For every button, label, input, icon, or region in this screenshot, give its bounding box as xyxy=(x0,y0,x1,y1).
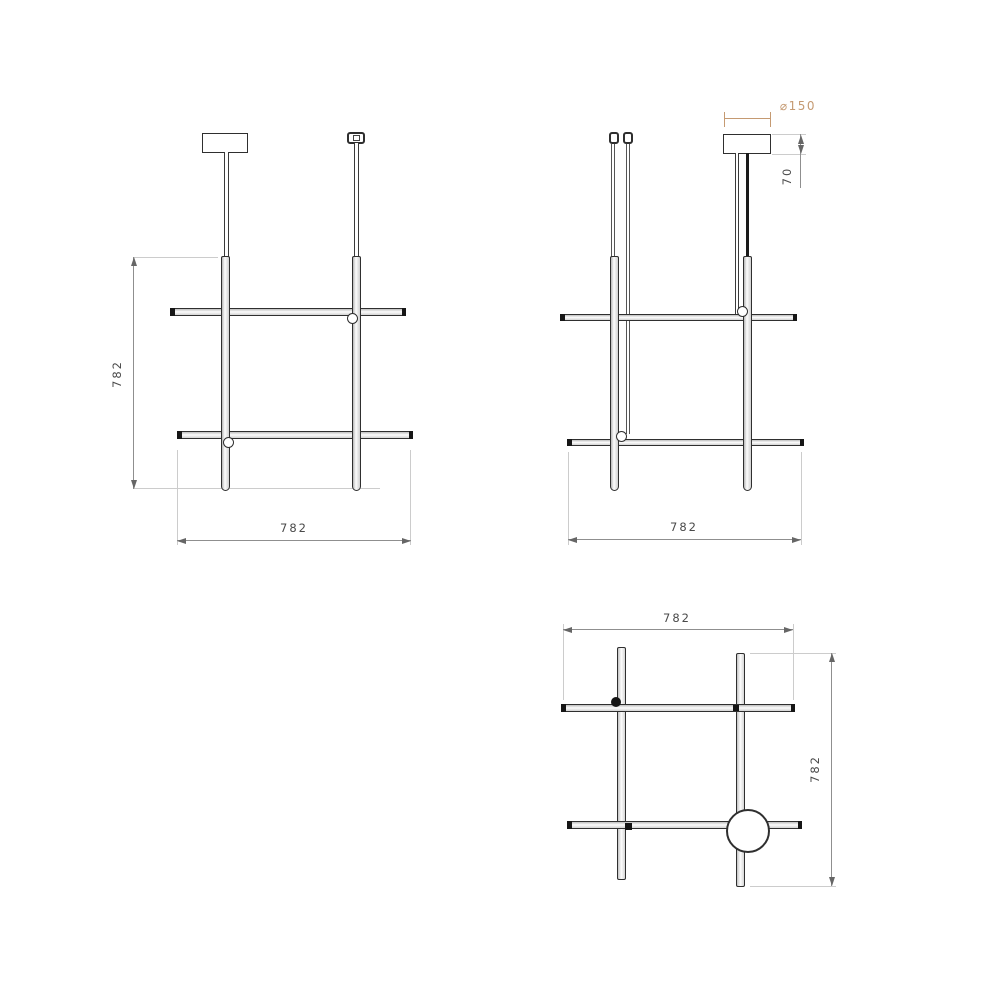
side-diameter-dim-line xyxy=(724,118,771,119)
side-vertical-tube-left xyxy=(610,256,619,491)
front-height-label: 782 xyxy=(110,344,124,404)
front-ext-top xyxy=(133,257,218,258)
plan-ext-depth-bottom xyxy=(750,886,836,887)
front-horizontal-tube-bottom xyxy=(177,431,413,439)
plan-width-arrow-right xyxy=(784,627,793,633)
plan-vertical-tube-left xyxy=(617,647,626,880)
front-vertical-tube-left xyxy=(221,256,230,491)
front-width-dim-line xyxy=(177,540,411,541)
side-horizontal-tube-bottom xyxy=(567,439,804,446)
front-width-arrow-left xyxy=(177,538,186,544)
plan-horizontal-tube-top-cap-right xyxy=(791,704,796,712)
side-suspension-wire-left xyxy=(611,144,615,257)
plan-depth-dim-line xyxy=(831,653,832,886)
side-horizontal-tube-top xyxy=(560,314,797,321)
front-ext-width-left xyxy=(177,450,178,545)
technical-drawing-canvas: 782 782 ⌀150 70 xyxy=(0,0,1000,1000)
plan-width-label: 782 xyxy=(647,611,707,625)
side-power-cable xyxy=(746,153,749,257)
plan-horizontal-tube-bottom-cap-right xyxy=(798,821,803,829)
side-wire-attachment-right xyxy=(623,132,633,144)
side-suspension-wire-right xyxy=(626,144,630,434)
front-horizontal-tube-top-cap-left xyxy=(170,308,175,316)
front-height-dim-line xyxy=(133,257,134,489)
front-vertical-tube-right xyxy=(352,256,361,491)
front-horizontal-tube-bottom-cap-right xyxy=(409,431,414,439)
front-horizontal-tube-bottom-cap-left xyxy=(177,431,182,439)
front-horizontal-tube-top-cap-right xyxy=(402,308,407,316)
side-canopy xyxy=(723,134,771,154)
side-horizontal-tube-top-cap-right xyxy=(793,314,798,321)
plan-width-dim-line xyxy=(563,629,793,630)
front-connector-ring-top xyxy=(347,313,358,324)
plan-horizontal-tube-bottom-cap-left xyxy=(567,821,572,829)
plan-depth-arrow-bottom xyxy=(829,877,835,886)
front-ceiling-attachment-right-inner xyxy=(353,135,360,141)
front-suspension-stem-left xyxy=(224,152,229,257)
plan-canopy-circle xyxy=(726,809,770,853)
front-canopy xyxy=(202,133,248,153)
plan-horizontal-tube-top-cap-left xyxy=(561,704,566,712)
plan-width-arrow-left xyxy=(563,627,572,633)
side-width-dim-line xyxy=(568,539,801,540)
front-width-label: 782 xyxy=(264,521,324,535)
side-horizontal-tube-top-cap-left xyxy=(560,314,565,321)
plan-connector-dot-top-left xyxy=(611,697,621,707)
side-diameter-tick-right xyxy=(770,112,771,127)
side-horizontal-tube-bottom-cap-left xyxy=(567,439,572,446)
side-canopy-height-label: 70 xyxy=(780,151,794,201)
plan-ext-width-right xyxy=(793,624,794,700)
side-ext-width-left xyxy=(568,452,569,545)
front-connector-ring-bottom xyxy=(223,437,234,448)
plan-ext-width-left xyxy=(563,624,564,700)
side-wire-attachment-left xyxy=(609,132,619,144)
side-connector-ring-top xyxy=(737,306,748,317)
front-height-arrow-top xyxy=(131,257,137,266)
side-width-label: 782 xyxy=(654,520,714,534)
plan-connector-dot-top-right xyxy=(733,705,739,711)
side-suspension-rod xyxy=(735,153,739,315)
side-canopy-arrow-bottom xyxy=(798,145,804,154)
side-width-arrow-left xyxy=(568,537,577,543)
front-ext-width-right xyxy=(410,450,411,545)
side-horizontal-tube-bottom-cap-right xyxy=(800,439,805,446)
plan-ext-depth-top xyxy=(750,653,836,654)
side-canopy-arrow-top xyxy=(798,135,804,144)
side-diameter-tick-left xyxy=(724,112,725,127)
plan-connector-dot-bottom-left xyxy=(625,823,632,830)
front-suspension-stem-right xyxy=(354,143,359,257)
side-diameter-label: ⌀150 xyxy=(772,99,824,113)
front-width-arrow-right xyxy=(402,538,411,544)
plan-depth-label: 782 xyxy=(808,739,822,799)
side-connector-ring-bottom xyxy=(616,431,627,442)
plan-horizontal-tube-top xyxy=(561,704,795,712)
front-horizontal-tube-top xyxy=(170,308,406,316)
front-ext-bottom xyxy=(133,488,380,489)
plan-depth-arrow-top xyxy=(829,653,835,662)
side-width-arrow-right xyxy=(792,537,801,543)
side-ext-width-right xyxy=(801,452,802,545)
front-height-arrow-bottom xyxy=(131,480,137,489)
side-vertical-tube-right xyxy=(743,256,752,491)
